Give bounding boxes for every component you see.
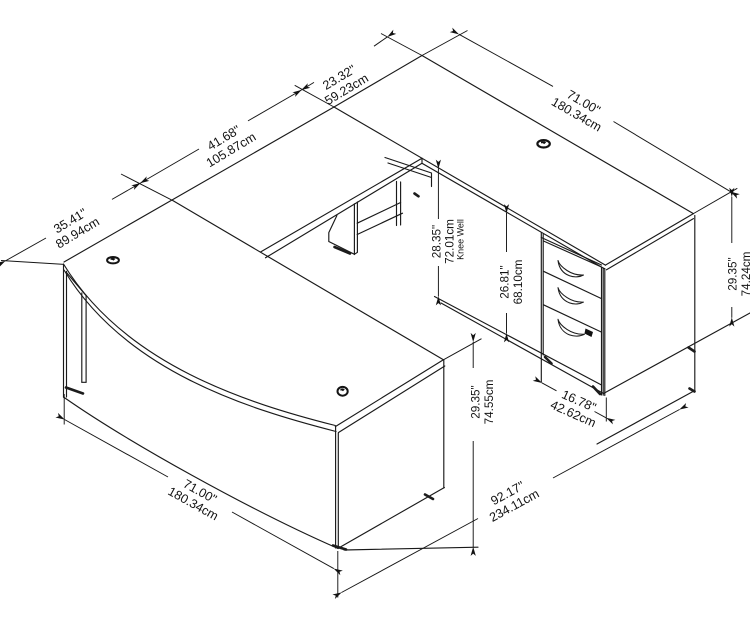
svg-text:26.81"68.10cm: 26.81"68.10cm xyxy=(499,260,526,305)
svg-text:28.35"72.01cm: 28.35"72.01cm xyxy=(431,219,457,264)
svg-text:Knee Well: Knee Well xyxy=(456,219,466,260)
svg-text:29.35"74.24cm: 29.35"74.24cm xyxy=(727,252,750,297)
svg-text:29.35"74.55cm: 29.35"74.55cm xyxy=(469,380,496,425)
